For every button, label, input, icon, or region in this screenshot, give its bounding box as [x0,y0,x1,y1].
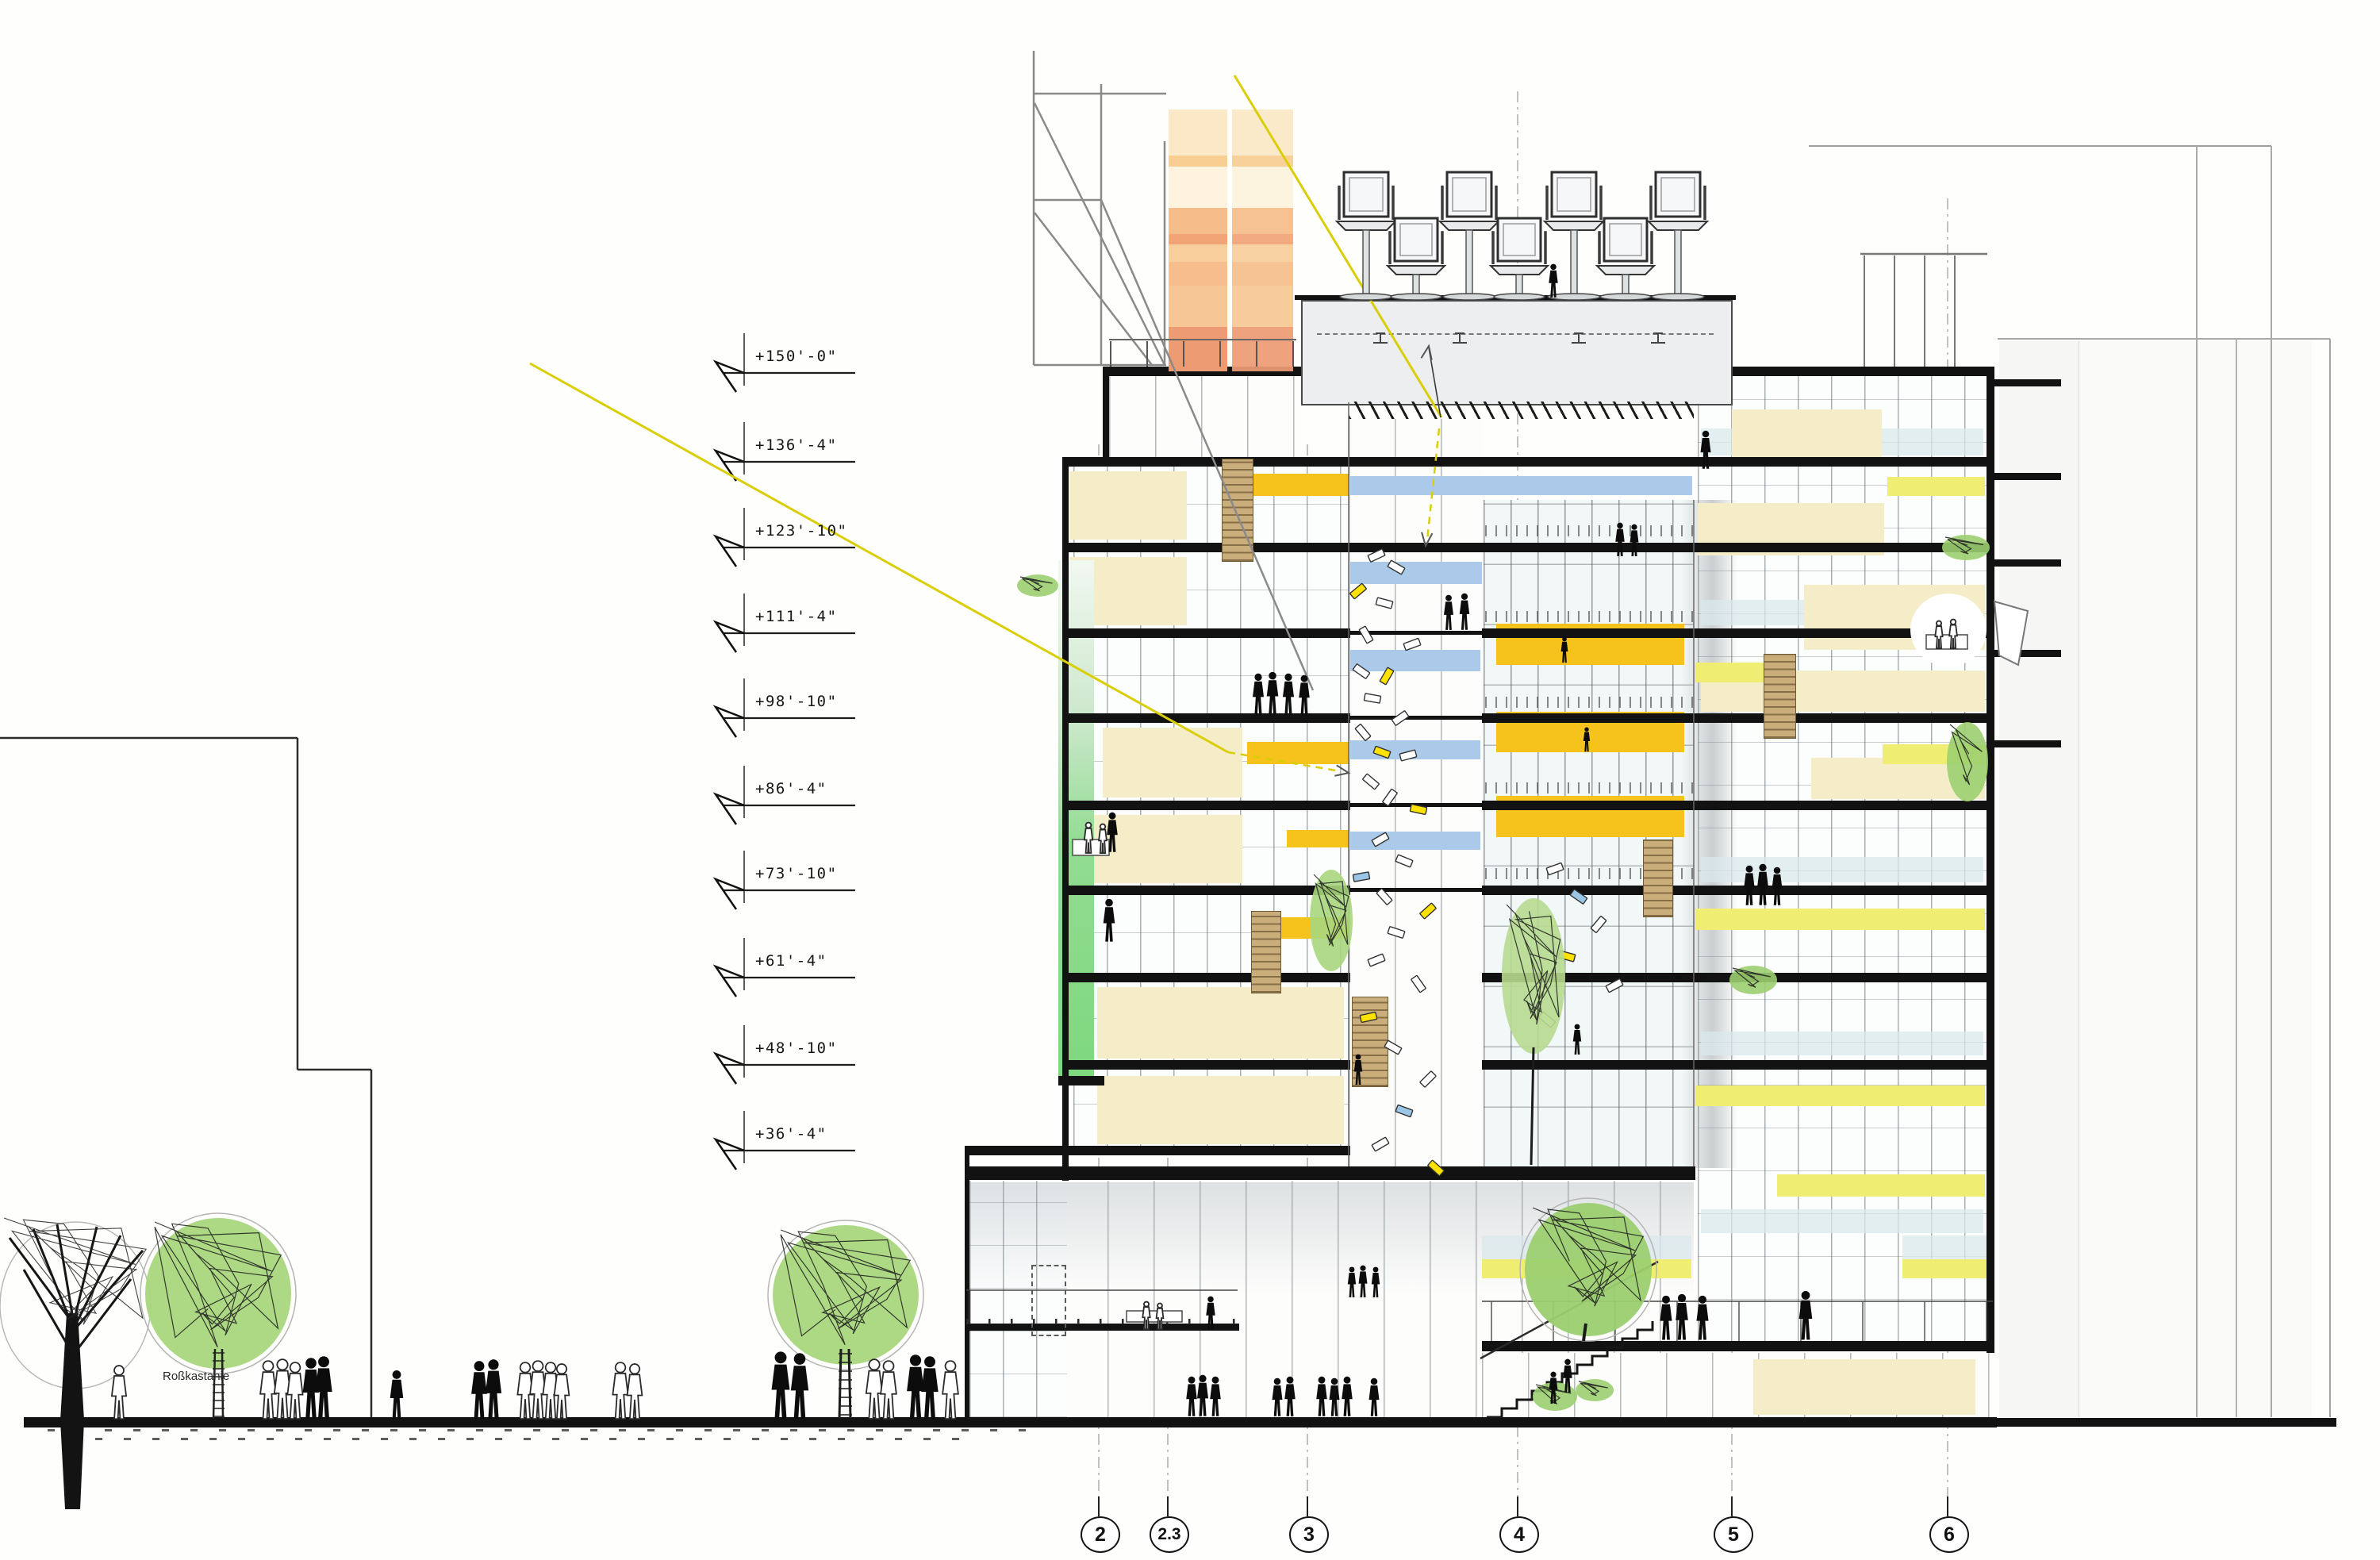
roof-chair-seat [1337,221,1395,230]
person-silhouette [1630,524,1639,556]
person-part [290,1362,301,1373]
roof-chair-stem [1571,230,1577,298]
person-part [1702,431,1710,438]
elev-flag [716,966,744,997]
elev-flag [716,622,744,652]
confetti-diamond [1376,889,1392,905]
roof-chair-base [1494,294,1545,300]
person-outline [287,1362,302,1419]
architectural-section-canvas: +150'-0" +136'-4" +123'-10" +111'-4" +98… [0,0,2380,1560]
person-part [1267,680,1279,714]
person-part [1759,864,1766,871]
roof-chair-back [1395,218,1438,261]
person-part [260,1372,276,1419]
person-part [305,1358,317,1369]
person-part [1617,523,1622,528]
person-part [1186,1384,1197,1416]
confetti-diamond [1360,1012,1376,1023]
person-part [1678,1294,1686,1302]
person-part [1284,674,1292,681]
person-part [1188,1377,1196,1384]
confetti-diamond [1420,1071,1437,1088]
roof-chair-back [1552,172,1596,217]
person-part [1199,1375,1206,1382]
person-part [1274,1378,1281,1385]
confetti-diamond [1403,638,1421,650]
person-part [1197,1383,1208,1416]
person-part [1699,1296,1706,1304]
person-part [1550,264,1556,270]
roof-chair-back [1447,172,1491,217]
person-part [471,1372,487,1419]
person-part [1316,1384,1327,1416]
person-part [1561,642,1568,663]
person-outline [555,1364,570,1419]
person-part [1371,1378,1378,1385]
person-part [775,1351,787,1363]
person-part [1105,899,1113,907]
person-part [1356,1055,1361,1060]
person-part [1757,872,1768,905]
person-part [1253,682,1264,715]
confetti-diamond [1373,746,1391,758]
confetti-diamond [1399,750,1417,761]
confetti-diamond [1353,664,1370,679]
elev-flag [716,707,744,737]
person-part [287,1374,302,1419]
person-silhouette [486,1359,501,1419]
person-part [1299,682,1310,714]
roof-chair-base [1391,294,1441,300]
person-silhouette [1206,1297,1215,1330]
person-silhouette [1104,899,1115,942]
person-part [907,1367,924,1419]
desk-sketch [1926,635,1967,649]
person-part [1157,1308,1164,1329]
person-part [303,1370,320,1419]
person-part [1562,637,1567,642]
person-part [1254,674,1261,681]
person-part [630,1364,639,1374]
person-part [921,1368,938,1419]
person-part [1359,1271,1368,1297]
person-silhouette [1757,864,1768,905]
person-part [910,1354,921,1366]
person-part [546,1362,556,1373]
person-silhouette [1696,1296,1708,1340]
person-part [1662,1296,1670,1304]
person-outline [1157,1304,1164,1330]
person-part [488,1359,498,1370]
person-silhouette [1549,264,1557,298]
person-silhouette [1348,1267,1356,1297]
person-part [1372,1273,1380,1297]
roof-chair-seat [1545,221,1603,230]
elev-flag [716,1139,744,1170]
person-part [1460,601,1469,630]
podium-tree-canopy [1525,1203,1652,1336]
person-part [1287,1377,1294,1384]
confetti-diamond [1372,832,1389,847]
person-part [1369,1385,1380,1416]
person-part [628,1374,643,1419]
confetti-diamond [1368,549,1385,563]
person-part [924,1356,935,1367]
person-outline [1099,824,1107,853]
person-part [1319,1377,1326,1384]
person-silhouette [1330,1378,1340,1416]
grid-bubble-2-3: 2.3 [1150,1516,1189,1553]
confetti-diamond [1380,667,1394,685]
person-part [1157,1304,1162,1308]
street-tree-canopy [773,1225,919,1365]
roof-chair-base [1340,294,1392,300]
person-silhouette [1660,1296,1672,1340]
elev-flag [716,1054,744,1084]
linework-layer [0,0,2380,1560]
person-part [1802,1291,1810,1300]
person-silhouette [1573,1024,1581,1055]
elevation-label-111: +111'-4" [755,608,890,625]
grid-bubble-3: 3 [1289,1516,1329,1553]
person-outline [942,1361,958,1419]
person-part [616,1362,626,1373]
atrium-tree-trunk [1531,1047,1534,1165]
confetti-diamond [1355,724,1371,740]
roof-chair-stem [1363,230,1369,298]
person-part [1344,1377,1351,1384]
confetti-diamond [1359,626,1373,644]
trellis-frame [1035,103,1165,365]
person-outline [112,1366,126,1419]
grid-bubble-5: 5 [1714,1516,1753,1553]
person-outline [628,1364,643,1419]
elevation-label-136: +136'-4" [755,436,890,454]
person-silhouette [1267,672,1279,715]
person-part [1206,1303,1215,1330]
person-outline [1935,621,1942,649]
confetti-diamond [1395,855,1413,867]
person-part [1696,1304,1708,1340]
sun-ray-b-dash [1427,428,1439,540]
person-part [533,1361,543,1371]
person-part [390,1380,404,1420]
person-outline [1084,823,1092,853]
roof-chair-seat [1440,221,1499,230]
person-part [1573,1030,1581,1055]
person-part [1331,1378,1338,1385]
person-silhouette [1316,1377,1327,1416]
elevation-label-150: +150'-0" [755,348,890,365]
person-part [612,1374,628,1419]
elevation-label-98: +98'-10" [755,693,890,710]
person-silhouette [1210,1377,1221,1416]
planting [1942,535,1990,560]
person-outline [881,1361,896,1419]
roof-chair-back [1604,218,1647,261]
person-part [520,1362,531,1373]
elev-flag [716,794,744,824]
person-part [1104,907,1115,941]
person-silhouette [315,1356,332,1419]
person-part [393,1370,401,1379]
person-silhouette [1369,1378,1380,1416]
person-part [1354,1060,1362,1085]
person-silhouette [1615,523,1624,556]
confetti-diamond [1546,863,1564,874]
person-part [114,1366,124,1375]
sun-ray-a-arrow [1334,765,1349,775]
person-part [1615,529,1624,556]
person-part [1212,1377,1219,1384]
confetti-diamond [1353,872,1369,882]
person-part [881,1372,896,1419]
roof-chair-back [1344,172,1388,217]
person-part [1445,595,1452,601]
person-outline [260,1361,276,1419]
person-silhouette [1253,674,1264,715]
confetti-diamond [1606,978,1623,992]
confetti-diamond [1591,916,1606,932]
person-part [1142,1307,1150,1329]
elev-flag [716,536,744,567]
person-part [884,1361,894,1371]
person-part [263,1361,274,1371]
person-silhouette [921,1356,938,1419]
bare-tree-trunk [60,1313,84,1509]
elevation-label-123: +123'-10" [755,522,890,540]
person-silhouette [1772,867,1783,905]
roof-chair-base [1652,294,1704,300]
person-part [1575,1024,1580,1030]
person-silhouette [1273,1378,1283,1416]
person-part [1273,1385,1283,1416]
desk-sketch [1127,1311,1182,1322]
confetti-diamond [1411,975,1426,993]
person-part [1444,601,1453,630]
person-part [517,1374,532,1419]
grid-bubble-2: 2 [1081,1516,1120,1553]
person-part [942,1372,958,1419]
grid-bubble-6: 6 [1929,1516,1969,1553]
person-silhouette [1359,1266,1368,1297]
confetti-diamond [1376,597,1393,609]
person-part [1301,675,1308,682]
person-part [1660,1304,1672,1340]
person-silhouette [907,1354,924,1419]
person-part [1583,732,1590,751]
elevation-label-61: +61'-4" [755,952,890,970]
person-silhouette [1701,431,1711,469]
person-part [1564,1359,1570,1365]
person-silhouette [1284,1377,1296,1416]
roof-chair-base [1443,294,1495,300]
person-silhouette [772,1351,790,1418]
person-outline [1142,1302,1150,1330]
confetti-diamond [1364,694,1380,703]
confetti-diamond [1388,560,1405,574]
person-part [555,1374,570,1419]
roof-chair-stem [1675,230,1681,298]
street-tree-trunk [849,1349,850,1419]
confetti-diamond [1388,927,1405,939]
confetti-diamond [1372,1137,1389,1151]
person-silhouette [1354,1055,1362,1085]
confetti-diamond [1383,789,1398,806]
person-silhouette [390,1370,404,1419]
person-part [1349,1267,1355,1273]
person-silhouette [1186,1377,1197,1416]
person-part [112,1376,126,1419]
person-part [557,1364,566,1374]
sun-ray-a-dash [1228,752,1341,771]
person-part [318,1356,329,1367]
person-part [1342,1384,1353,1416]
confetti-diamond [1410,805,1426,815]
person-part [1937,621,1941,626]
person-part [1348,1273,1356,1297]
person-part [1631,524,1637,530]
grid-bubble-4: 4 [1499,1516,1539,1553]
person-part [1207,1297,1213,1302]
roof-chair-back [1656,172,1700,217]
person-silhouette [1744,866,1755,905]
confetti-diamond [1420,903,1437,919]
person-silhouette [1460,594,1469,630]
person-silhouette [1283,674,1294,715]
elevation-label-73: +73'-10" [755,865,890,882]
elevation-label-86: +86'-4" [755,780,890,797]
roof-chair-stem [1466,230,1472,298]
person-silhouette [1583,727,1590,751]
person-silhouette [1372,1267,1380,1297]
person-part [1746,866,1753,873]
person-part [866,1371,882,1419]
confetti-diamond [1570,890,1587,905]
roof-chair-seat [1388,266,1445,275]
person-part [1630,530,1639,556]
person-part [1086,823,1092,828]
trellis-frame [1101,200,1313,690]
confetti-diamond [1428,1160,1445,1176]
person-silhouette [1342,1377,1353,1416]
planting [1729,966,1777,994]
confetti-diamond [1362,774,1379,790]
confetti-diamond [1395,1105,1413,1116]
person-part [869,1359,879,1370]
person-part [1100,824,1105,829]
elevation-label-48: +48'-10" [755,1039,890,1057]
person-part [1772,874,1783,905]
person-part [1701,438,1711,469]
person-part [772,1365,790,1419]
person-part [1360,1266,1365,1271]
roof-chair-base [1600,294,1651,300]
person-part [474,1361,485,1371]
person-part [1584,727,1588,731]
person-part [1550,1372,1556,1377]
elev-flag [716,362,744,392]
person-part [1144,1302,1149,1307]
person-outline [866,1359,882,1419]
person-part [1373,1267,1379,1273]
street-tree-trunk [839,1349,841,1419]
elev-flag [716,879,744,909]
person-part [530,1372,546,1419]
confetti-diamond [1368,954,1385,966]
person-part [794,1353,806,1365]
tree-species-label: Roßkastanie [163,1370,229,1383]
person-part [1210,1384,1221,1416]
elev-flag [716,451,744,481]
elevation-label-36: +36'-4" [755,1125,890,1143]
confetti-diamond [1392,711,1409,726]
roof-chair-seat [1491,266,1548,275]
facade-banner [1994,601,2028,665]
person-part [1109,813,1116,820]
person-silhouette [1561,637,1568,663]
person-part [315,1368,332,1419]
person-silhouette [1444,595,1453,630]
person-part [946,1361,956,1371]
person-part [1461,594,1468,600]
roof-chair-seat [1597,266,1654,275]
person-part [486,1371,501,1419]
person-part [1330,1385,1340,1416]
person-part [791,1366,808,1419]
person-silhouette [1197,1375,1208,1416]
person-part [277,1359,287,1370]
roof-chair-seat [1649,221,1707,230]
person-outline [612,1362,628,1419]
confetti-diamond [1384,1040,1402,1055]
person-part [1269,672,1276,680]
roof-chair-back [1498,218,1541,261]
person-part [1774,867,1781,874]
person-part [1284,1384,1296,1416]
person-part [1283,682,1294,715]
person-silhouette [471,1361,487,1419]
person-part [1951,620,1956,624]
person-part [1549,271,1557,298]
person-outline [1949,620,1957,648]
person-silhouette [791,1353,808,1419]
confetti-diamond [1349,583,1366,599]
trellis-frame [1035,213,1152,365]
person-part [1744,873,1755,905]
